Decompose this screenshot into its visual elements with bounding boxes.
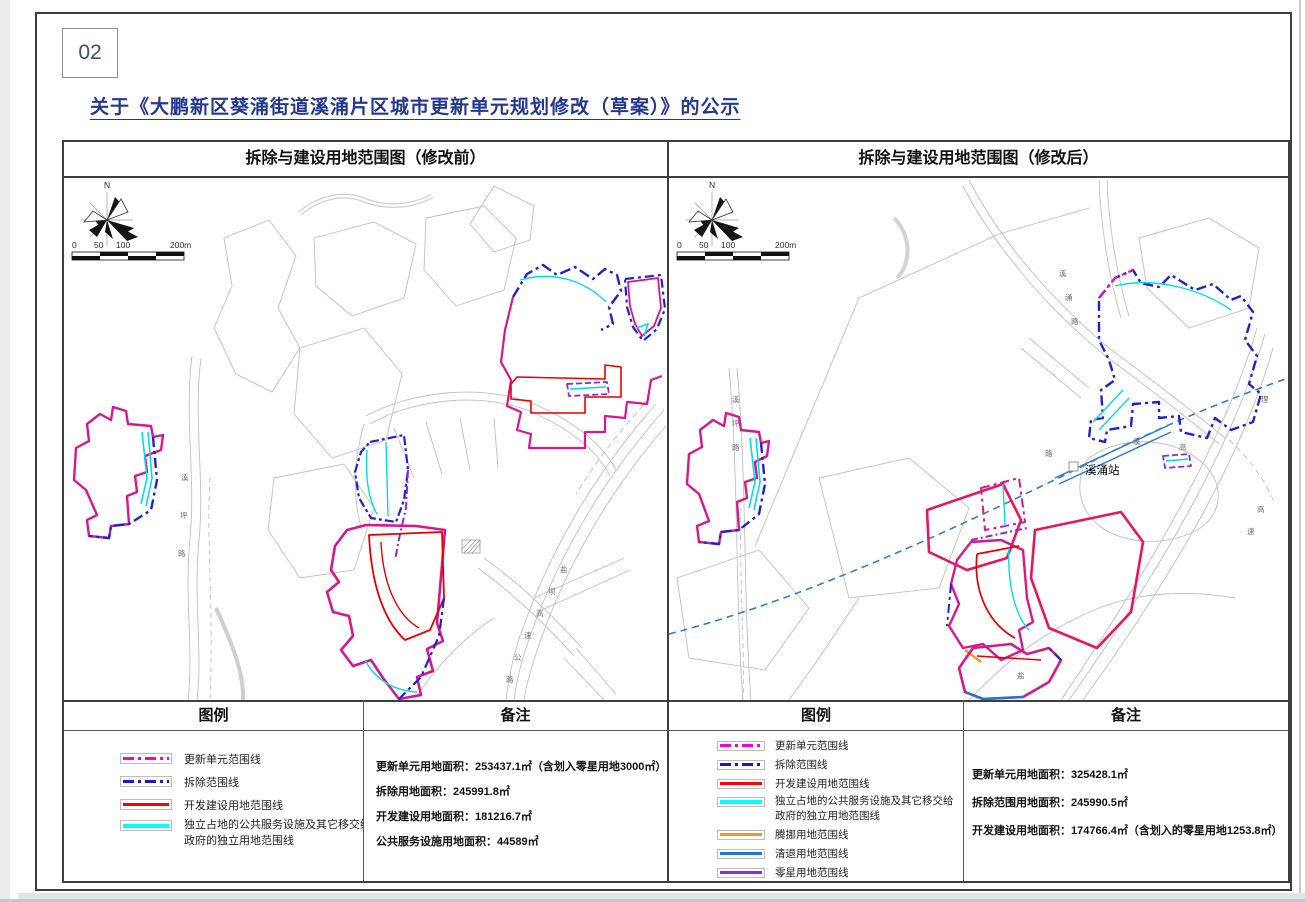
legend-item-public-facility: 独立占地的公共服务设施及其它移交给 政府的独立用地范围线	[717, 793, 963, 825]
svg-text:路: 路	[1045, 448, 1053, 458]
svg-text:高: 高	[1257, 504, 1265, 514]
notes-title-after: 备注	[964, 702, 1288, 730]
northeast-cluster	[501, 265, 665, 448]
legend-label: 拆除范围线	[184, 774, 239, 790]
svg-text:路: 路	[732, 442, 740, 452]
legend-item-update-unit: 更新单元范围线	[120, 747, 363, 770]
legend-label-line1: 独立占地的公共服务设施及其它移交给	[775, 795, 954, 807]
note-line: 开发建设用地面积：181216.7㎡	[376, 809, 667, 825]
ne-public-band	[1093, 390, 1129, 430]
middle-cluster	[327, 435, 445, 699]
legend-label: 独立占地的公共服务设施及其它移交给 政府的独立用地范围线	[184, 816, 363, 848]
svg-text:路: 路	[506, 674, 514, 684]
north-label: N	[104, 180, 110, 190]
svg-text:盐: 盐	[560, 564, 568, 574]
legend-label: 开发建设用地范围线	[775, 776, 870, 791]
svg-text:公: 公	[514, 653, 522, 662]
station-label: 溪涌站	[1085, 463, 1120, 477]
page-title[interactable]: 关于《大鹏新区葵涌街道溪涌片区城市更新单元规划修改（草案）》的公示	[90, 92, 741, 119]
notes-after: 更新单元用地面积：325428.1㎡ 拆除范围用地面积：245990.5㎡ 开发…	[964, 731, 1288, 881]
svg-text:溪: 溪	[1059, 268, 1067, 278]
svg-text:100: 100	[721, 240, 735, 250]
screen: 02 关于《大鹏新区葵涌街道溪涌片区城市更新单元规划修改（草案）》的公示 拆除与…	[0, 0, 1305, 902]
scale-bar: 0 50 100 200m	[677, 240, 796, 260]
panel-header-after: 拆除与建设用地范围图（修改后）	[669, 142, 1288, 176]
update-unit-line-swatch-icon	[717, 741, 765, 751]
svg-text:50: 50	[699, 240, 709, 250]
road-labels: 溪 坪 路 溪 涌 路 溪涌站 溪 高 路 盐 理 高 速	[732, 268, 1269, 680]
panel-header-before: 拆除与建设用地范围图（修改前）	[64, 142, 667, 176]
update-unit-line-swatch-icon	[120, 753, 172, 764]
note-line: 更新单元用地面积：325428.1㎡	[972, 767, 1288, 783]
legend-label-line2: 政府的独立用地范围线	[184, 832, 363, 848]
west-public-line	[141, 432, 152, 506]
rail	[669, 378, 1288, 634]
hatch-area	[462, 540, 480, 553]
demolition-line-swatch-icon	[717, 760, 765, 770]
legend-label-line1: 独立占地的公共服务设施及其它移交给	[184, 819, 363, 831]
demolition-line-swatch-icon	[120, 776, 172, 787]
development-line-swatch-icon	[717, 779, 765, 789]
note-line: 开发建设用地面积：174766.4㎡（含划入的零星用地1253.8㎡）	[972, 823, 1288, 839]
relocation-line-swatch-icon	[717, 830, 765, 840]
page-number: 02	[78, 41, 101, 65]
legend-label-line2: 政府的独立用地范围线	[775, 808, 954, 823]
svg-text:路: 路	[178, 548, 186, 558]
public-facility-line-swatch-icon	[120, 820, 172, 831]
west-public-line	[749, 438, 760, 510]
north-arrow: N	[686, 180, 743, 246]
scattered-edge	[971, 528, 1027, 540]
svg-text:盐: 盐	[1017, 670, 1025, 680]
note-line: 公共服务设施用地面积：44589㎡	[376, 834, 667, 850]
notes-title-before: 备注	[364, 702, 667, 730]
public-facility-line-swatch-icon	[717, 797, 765, 807]
svg-text:坪: 坪	[180, 511, 188, 520]
south-parcel	[959, 644, 1061, 699]
basemap-lines	[188, 186, 666, 700]
map-before-svg: N 0 50 100 200m 溪	[64, 178, 667, 700]
svg-text:溪: 溪	[732, 394, 740, 404]
svg-text:溪: 溪	[181, 472, 189, 482]
north-label: N	[709, 180, 715, 190]
note-line: 拆除用地面积：245991.8㎡	[376, 784, 667, 800]
legend-item-update-unit: 更新单元范围线	[717, 736, 963, 755]
map-after-svg: N 0 50 100 200m 溪	[669, 178, 1288, 700]
map-before: N 0 50 100 200m 溪	[64, 178, 667, 700]
page-right-edge-line	[1299, 0, 1301, 902]
svg-text:高: 高	[1179, 442, 1187, 452]
legend-title-after: 图例	[669, 702, 963, 730]
mid-public-lines	[366, 442, 388, 516]
document-page: 02 关于《大鹏新区葵涌街道溪涌片区城市更新单元规划修改（草案）》的公示 拆除与…	[35, 12, 1292, 891]
svg-text:200m: 200m	[170, 240, 191, 250]
svg-text:坝: 坝	[548, 587, 556, 596]
legend-item-demolition: 拆除范围线	[717, 755, 963, 774]
legend-item-demolition: 拆除范围线	[120, 770, 363, 793]
scattered-line-swatch-icon	[717, 868, 765, 878]
svg-text:坪: 坪	[732, 419, 740, 428]
svg-text:溪: 溪	[1133, 436, 1141, 446]
red-parcel-east	[1031, 512, 1143, 648]
legend-label: 腾挪用地范围线	[775, 827, 849, 842]
ne-scattered-chip-cyan	[1166, 459, 1188, 461]
legend-item-development: 开发建设用地范围线	[717, 774, 963, 793]
ne-east-lobe	[625, 275, 665, 341]
legend-item-development: 开发建设用地范围线	[120, 793, 363, 816]
center-cluster	[927, 478, 1143, 662]
svg-text:0: 0	[72, 240, 77, 250]
legend-item-scattered: 零星用地范围线	[717, 863, 963, 881]
west-demolition-line	[89, 437, 157, 538]
legend-label: 独立占地的公共服务设施及其它移交给 政府的独立用地范围线	[775, 793, 954, 823]
page-number-box: 02	[62, 28, 118, 78]
clearance-line-swatch-icon	[717, 849, 765, 859]
svg-text:涌: 涌	[1065, 292, 1073, 302]
red-parcel-west	[927, 484, 1021, 570]
legend-after-items: 更新单元范围线 拆除范围线 开发建设用地范围线 独立占地的公共服务设施及其它移交…	[669, 731, 963, 881]
northeast-parcel	[1089, 270, 1261, 468]
svg-text:理: 理	[1261, 395, 1269, 404]
ne-development-line	[511, 365, 621, 413]
west-unit-line	[74, 407, 163, 538]
mid-scattered-line	[395, 470, 408, 560]
legend-label: 清退用地范围线	[775, 846, 849, 861]
note-line: 更新单元用地面积：253437.1㎡（含划入零星用地3000㎡）	[376, 759, 667, 775]
ne-public-line	[1115, 283, 1231, 310]
rail-line	[669, 378, 1288, 634]
dev-demolition-edge	[947, 584, 951, 626]
legend-label: 开发建设用地范围线	[184, 797, 283, 813]
legend-item-clearance: 清退用地范围线	[717, 844, 963, 863]
legend-label: 零星用地范围线	[775, 865, 849, 880]
west-parcel	[74, 407, 163, 538]
svg-text:100: 100	[116, 240, 130, 250]
west-unit-line	[687, 413, 769, 544]
west-parcel	[687, 413, 769, 544]
west-demolition-line	[699, 443, 765, 544]
station-box	[1069, 462, 1078, 471]
legend-label: 拆除范围线	[775, 757, 828, 772]
development-line-swatch-icon	[120, 799, 172, 810]
viewer-left-margin	[0, 0, 10, 902]
svg-text:路: 路	[1071, 316, 1079, 326]
svg-text:200m: 200m	[775, 240, 796, 250]
legend-title-before: 图例	[64, 702, 363, 730]
map-after: N 0 50 100 200m 溪	[669, 178, 1288, 700]
svg-text:50: 50	[94, 240, 104, 250]
note-line: 拆除范围用地面积：245990.5㎡	[972, 795, 1288, 811]
ne-demolition-line	[513, 265, 621, 330]
notes-before: 更新单元用地面积：253437.1㎡（含划入零星用地3000㎡） 拆除用地面积：…	[364, 731, 667, 881]
south-clearance-edge	[965, 692, 1023, 699]
legend-item-public-facility: 独立占地的公共服务设施及其它移交给 政府的独立用地范围线	[120, 816, 363, 850]
scale-bar: 0 50 100 200m	[72, 240, 191, 260]
svg-text:速: 速	[524, 631, 532, 640]
dev-unit-line	[949, 540, 1033, 660]
north-arrow: N	[81, 180, 138, 246]
south-demolition-edge	[1049, 648, 1061, 660]
ne-public-line	[520, 276, 606, 302]
legend-item-relocation: 腾挪用地范围线	[717, 825, 963, 844]
mid-development-line	[369, 532, 444, 640]
legend-label: 更新单元范围线	[184, 751, 261, 767]
legend-before-items: 更新单元范围线 拆除范围线 开发建设用地范围线 独立占地的公共服务设施及其它移交…	[64, 731, 363, 881]
layout-table: 拆除与建设用地范围图（修改前） 拆除与建设用地范围图（修改后）	[62, 140, 1290, 883]
svg-text:高: 高	[536, 608, 544, 618]
legend-label: 更新单元范围线	[775, 738, 849, 753]
svg-text:0: 0	[677, 240, 682, 250]
svg-text:速: 速	[1247, 527, 1255, 536]
south-unit-line	[959, 644, 1061, 699]
ne-scattered-chip-cyan	[570, 387, 606, 389]
